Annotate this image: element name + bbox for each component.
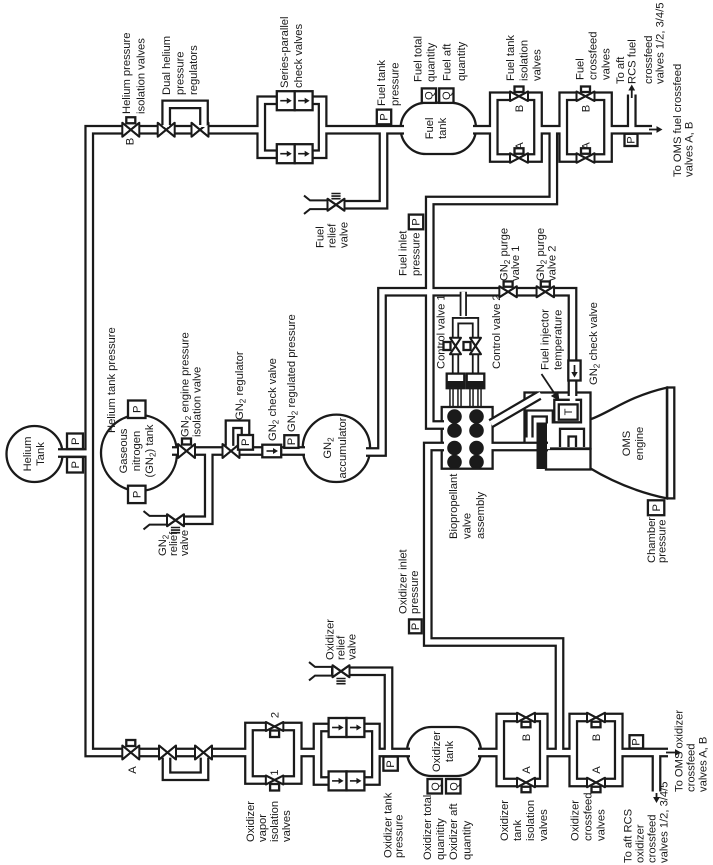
svg-text:A: A [591, 766, 603, 774]
svg-text:quantity: quantity [456, 41, 468, 81]
svg-text:Q: Q [430, 782, 442, 791]
svg-text:relief: relief [327, 223, 339, 248]
svg-text:Fuel aft: Fuel aft [442, 43, 454, 81]
svg-text:assembly: assembly [475, 491, 487, 539]
svg-text:valve 2: valve 2 [547, 246, 559, 281]
svg-text:Control valve 2: Control valve 2 [491, 294, 503, 369]
svg-text:Dual helium: Dual helium [161, 36, 173, 95]
svg-text:valve: valve [339, 222, 351, 248]
svg-text:quanitity: quanitity [435, 818, 447, 860]
svg-text:crossfeed: crossfeed [643, 35, 655, 84]
svg-text:To aft RCS: To aft RCS [623, 809, 635, 863]
svg-text:Fuel injector: Fuel injector [540, 309, 552, 370]
svg-text:regulators: regulators [188, 45, 200, 95]
svg-text:Helium tank pressure: Helium tank pressure [106, 327, 118, 433]
svg-text:temperature: temperature [553, 310, 565, 370]
svg-text:Control valve 1: Control valve 1 [436, 294, 448, 369]
svg-text:P: P [631, 738, 643, 745]
svg-text:crossfeed: crossfeed [647, 814, 659, 863]
svg-text:P: P [286, 438, 298, 445]
svg-text:Fuel tank: Fuel tank [376, 60, 388, 106]
svg-text:valves: valves [532, 49, 544, 81]
svg-text:P: P [131, 491, 143, 498]
svg-text:B: B [591, 734, 603, 741]
svg-text:Oxidizer inlet: Oxidizer inlet [398, 548, 410, 614]
svg-text:Oxidizer: Oxidizer [499, 800, 511, 841]
svg-text:To OMS fuel crossfeed: To OMS fuel crossfeed [672, 64, 684, 177]
svg-text:valves: valves [596, 809, 608, 841]
svg-text:pressure: pressure [390, 62, 402, 106]
svg-text:engine: engine [634, 427, 646, 461]
svg-text:Fuel tank: Fuel tank [505, 35, 517, 81]
svg-text:P: P [625, 136, 637, 143]
svg-text:A: A [514, 142, 526, 150]
svg-text:isolation valve: isolation valve [192, 367, 204, 437]
svg-text:valves: valves [538, 809, 550, 841]
svg-text:P: P [379, 113, 391, 120]
svg-text:pressure: pressure [394, 814, 406, 858]
svg-text:tank: tank [512, 819, 524, 841]
svg-text:GN2​ check valve: GN2​ check valve [267, 358, 281, 441]
svg-text:Helium pressure: Helium pressure [121, 33, 133, 114]
svg-text:isolation valves: isolation valves [136, 38, 148, 114]
svg-text:valve: valve [462, 513, 474, 539]
svg-text:Fuel: Fuel [575, 58, 587, 80]
svg-text:P: P [411, 218, 423, 225]
svg-text:GN2​ check valve: GN2​ check valve [588, 302, 602, 385]
svg-text:valves A, B: valves A, B [698, 737, 710, 792]
svg-text:valves 1/2, 3/4/5: valves 1/2, 3/4/5 [659, 782, 671, 863]
svg-text:To aft: To aft [615, 56, 627, 84]
svg-text:valves 1/2, 3/4/5: valves 1/2, 3/4/5 [655, 3, 667, 84]
svg-text:oxidizer: oxidizer [635, 824, 647, 863]
svg-text:Series-parallel: Series-parallel [279, 16, 291, 88]
svg-text:pressure: pressure [657, 519, 669, 563]
svg-text:valve 1: valve 1 [510, 246, 522, 281]
svg-text:isolation: isolation [269, 801, 281, 842]
svg-text:Oxidizer: Oxidizer [431, 731, 443, 772]
svg-text:nitrogen: nitrogen [131, 431, 143, 471]
svg-text:Q: Q [449, 782, 461, 791]
svg-text:quantity: quantity [426, 42, 438, 82]
svg-text:(GN2​) tank: (GN2​) tank [144, 424, 158, 477]
svg-text:valve: valve [347, 634, 359, 660]
svg-text:tank: tank [444, 741, 456, 763]
svg-text:P: P [70, 437, 82, 444]
svg-text:check valves: check valves [293, 24, 305, 88]
svg-text:Oxidizer: Oxidizer [245, 801, 257, 842]
svg-text:Helium: Helium [22, 437, 34, 472]
svg-text:valves: valves [281, 810, 293, 842]
svg-text:GN2​ regulator: GN2​ regulator [234, 351, 248, 420]
svg-text:Fuel total: Fuel total [413, 36, 425, 82]
svg-text:crossfeed: crossfeed [588, 31, 600, 80]
svg-text:pressure: pressure [175, 51, 187, 95]
svg-text:quantity: quantity [462, 820, 474, 860]
svg-text:Q: Q [441, 91, 453, 100]
svg-text:accumulator: accumulator [337, 417, 349, 478]
svg-text:Fuel inlet: Fuel inlet [398, 230, 410, 276]
svg-text:RCS fuel: RCS fuel [627, 39, 639, 84]
svg-text:Biopropellant: Biopropellant [448, 473, 460, 539]
svg-text:isolation: isolation [518, 40, 530, 81]
svg-text:P: P [131, 405, 143, 412]
svg-text:Fuel: Fuel [424, 118, 436, 140]
svg-text:crossfeed: crossfeed [583, 792, 595, 841]
svg-text:Gaseous: Gaseous [118, 428, 130, 473]
svg-text:Tank: Tank [35, 442, 47, 466]
svg-text:A: A [127, 766, 139, 774]
svg-text:P: P [70, 461, 82, 468]
svg-text:valve: valve [179, 530, 191, 556]
svg-text:T: T [563, 408, 575, 415]
svg-text:P: P [651, 504, 663, 511]
svg-text:A: A [581, 142, 593, 150]
svg-text:valves A, B: valves A, B [684, 122, 696, 177]
svg-text:pressure: pressure [409, 570, 421, 614]
svg-text:B: B [125, 138, 137, 145]
svg-text:Q: Q [424, 91, 436, 100]
svg-text:isolation: isolation [525, 800, 537, 841]
svg-text:Oxidizer: Oxidizer [570, 800, 582, 841]
svg-text:P: P [240, 439, 252, 446]
svg-text:OMS: OMS [621, 431, 633, 456]
svg-text:2: 2 [270, 712, 282, 718]
svg-text:To OMS oxidizer: To OMS oxidizer [674, 710, 686, 792]
svg-text:1: 1 [269, 769, 281, 775]
svg-text:Oxidizer aft: Oxidizer aft [448, 803, 460, 860]
svg-text:B: B [521, 734, 533, 741]
svg-text:pressure: pressure [411, 232, 423, 276]
svg-text:tank: tank [437, 117, 449, 139]
svg-text:P: P [385, 760, 397, 767]
svg-text:valves: valves [601, 48, 613, 80]
svg-text:Oxidizer total: Oxidizer total [422, 795, 434, 860]
svg-text:vapor: vapor [257, 814, 269, 842]
svg-text:A: A [521, 766, 533, 774]
svg-text:P: P [410, 623, 422, 630]
svg-text:B: B [514, 105, 526, 112]
svg-text:B: B [581, 105, 593, 112]
svg-text:crossfeed: crossfeed [686, 743, 698, 792]
svg-text:Fuel: Fuel [315, 226, 327, 248]
